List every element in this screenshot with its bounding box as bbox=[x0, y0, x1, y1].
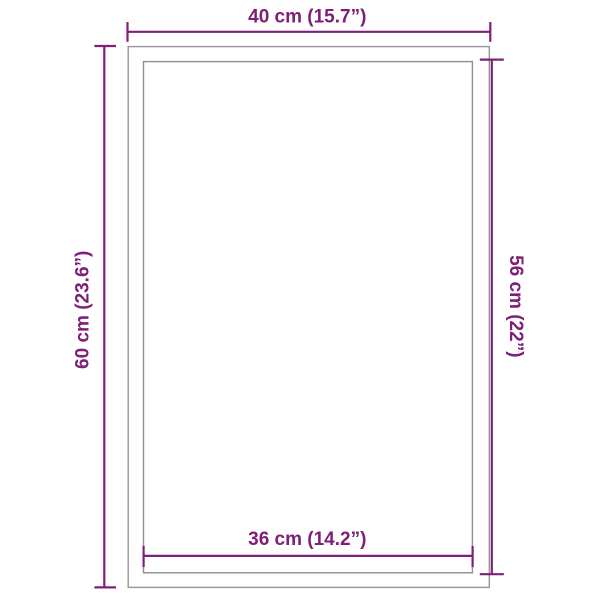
svg-text:40 cm (15.7”): 40 cm (15.7”) bbox=[248, 6, 366, 27]
svg-text:60 cm (23.6”): 60 cm (23.6”) bbox=[72, 251, 93, 369]
svg-text:56 cm (22”): 56 cm (22”) bbox=[505, 255, 526, 357]
svg-text:36 cm (14.2”): 36 cm (14.2”) bbox=[248, 529, 366, 550]
